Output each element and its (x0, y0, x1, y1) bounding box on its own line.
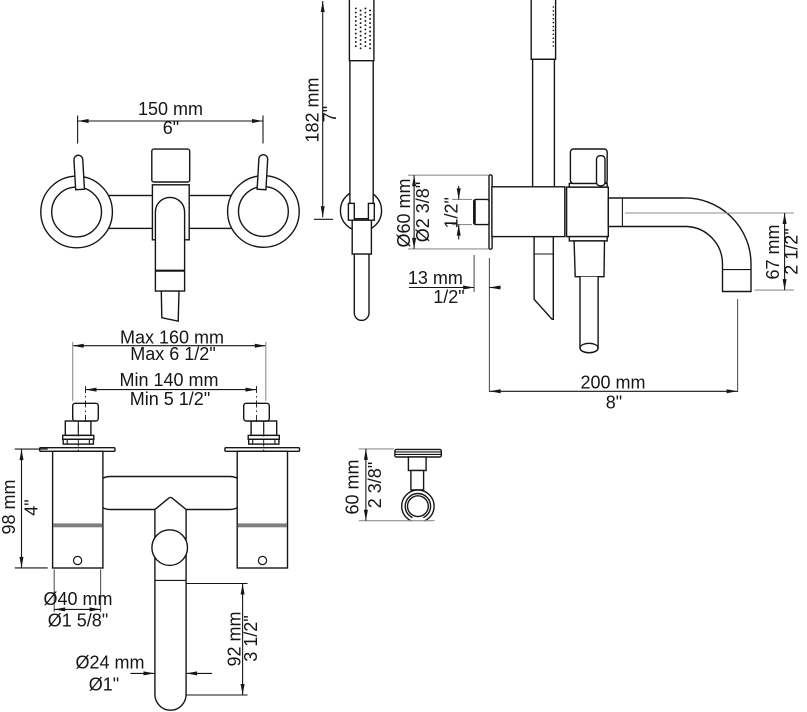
svg-text:60 mm: 60 mm (343, 459, 363, 514)
svg-text:2 1/2": 2 1/2" (782, 228, 802, 274)
svg-text:150 mm: 150 mm (138, 99, 203, 119)
svg-text:67 mm: 67 mm (763, 224, 783, 279)
svg-text:1/2": 1/2" (433, 287, 464, 307)
svg-text:200 mm: 200 mm (580, 373, 645, 393)
svg-text:8": 8" (606, 393, 622, 413)
svg-text:Min 140 mm: Min 140 mm (119, 370, 218, 390)
svg-text:1/2": 1/2" (442, 197, 462, 228)
svg-text:2 3/8": 2 3/8" (365, 462, 385, 508)
svg-text:Ø1 5/8": Ø1 5/8" (48, 611, 108, 631)
svg-text:4": 4" (22, 499, 42, 515)
svg-text:Ø60 mm: Ø60 mm (394, 178, 414, 247)
svg-text:6": 6" (163, 118, 179, 138)
svg-text:13 mm: 13 mm (408, 268, 463, 288)
svg-text:98 mm: 98 mm (0, 479, 19, 534)
svg-text:Max 6 1/2": Max 6 1/2" (130, 344, 215, 364)
svg-text:Ø24 mm: Ø24 mm (75, 653, 144, 673)
svg-text:Ø2 3/8": Ø2 3/8" (413, 182, 433, 242)
svg-text:3 1/2": 3 1/2" (241, 615, 261, 661)
svg-text:Ø1": Ø1" (89, 675, 119, 695)
svg-text:Min 5 1/2": Min 5 1/2" (130, 389, 210, 409)
svg-text:Ø40 mm: Ø40 mm (43, 589, 112, 609)
svg-text:7": 7" (320, 106, 340, 122)
